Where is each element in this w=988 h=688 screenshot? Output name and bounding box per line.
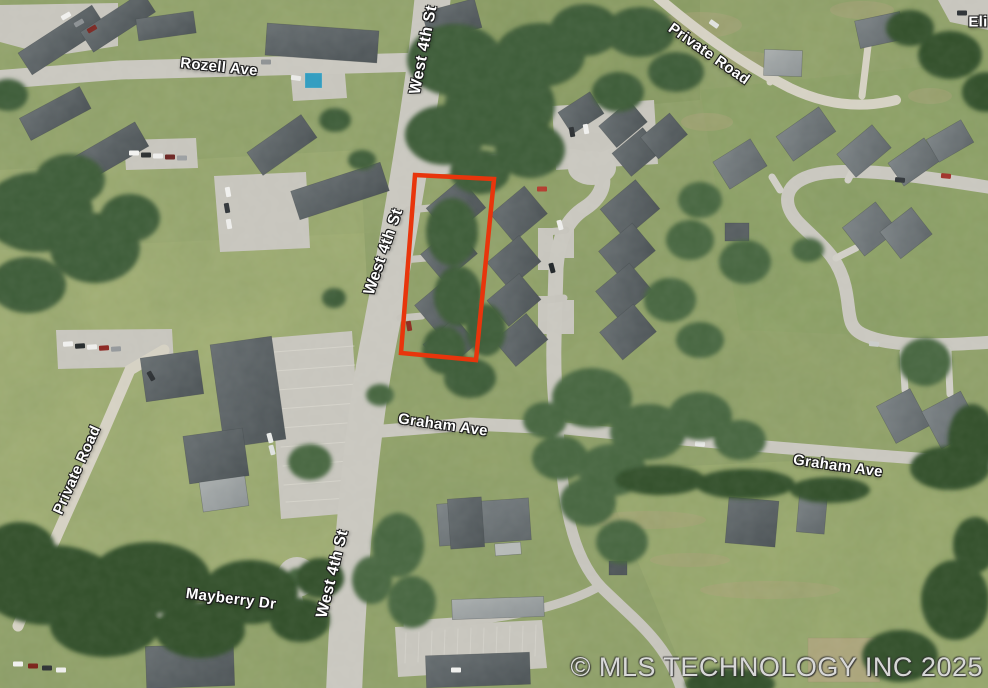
- image-grain: [0, 0, 988, 688]
- street-label-eli-partial: Eli: [968, 14, 987, 31]
- satellite-map: West 4th St Rozell Ave Private Road Eli …: [0, 0, 988, 688]
- copyright-watermark: © MLS TECHNOLOGY INC 2025: [570, 652, 983, 683]
- aerial-imagery: [0, 0, 988, 688]
